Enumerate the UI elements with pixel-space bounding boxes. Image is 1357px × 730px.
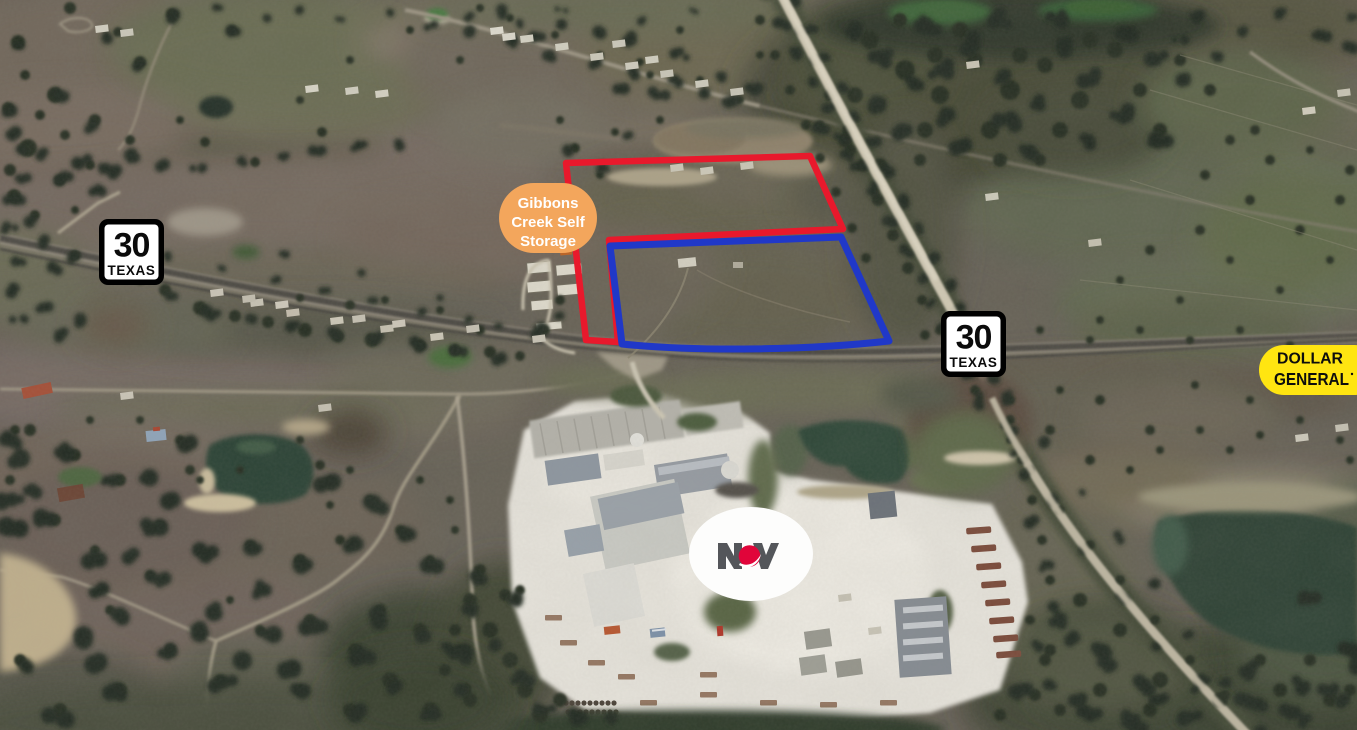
svg-text:DOLLAR: DOLLAR: [1277, 351, 1343, 368]
svg-text:Storage: Storage: [520, 233, 576, 250]
svg-text:TEXAS: TEXAS: [107, 263, 155, 278]
svg-text:30: 30: [114, 227, 150, 265]
svg-text:Gibbons: Gibbons: [518, 195, 579, 212]
svg-text:TEXAS: TEXAS: [949, 355, 997, 370]
svg-text:Creek Self: Creek Self: [511, 214, 585, 231]
svg-text:30: 30: [956, 319, 992, 357]
svg-text:GENERAL: GENERAL: [1274, 369, 1349, 389]
